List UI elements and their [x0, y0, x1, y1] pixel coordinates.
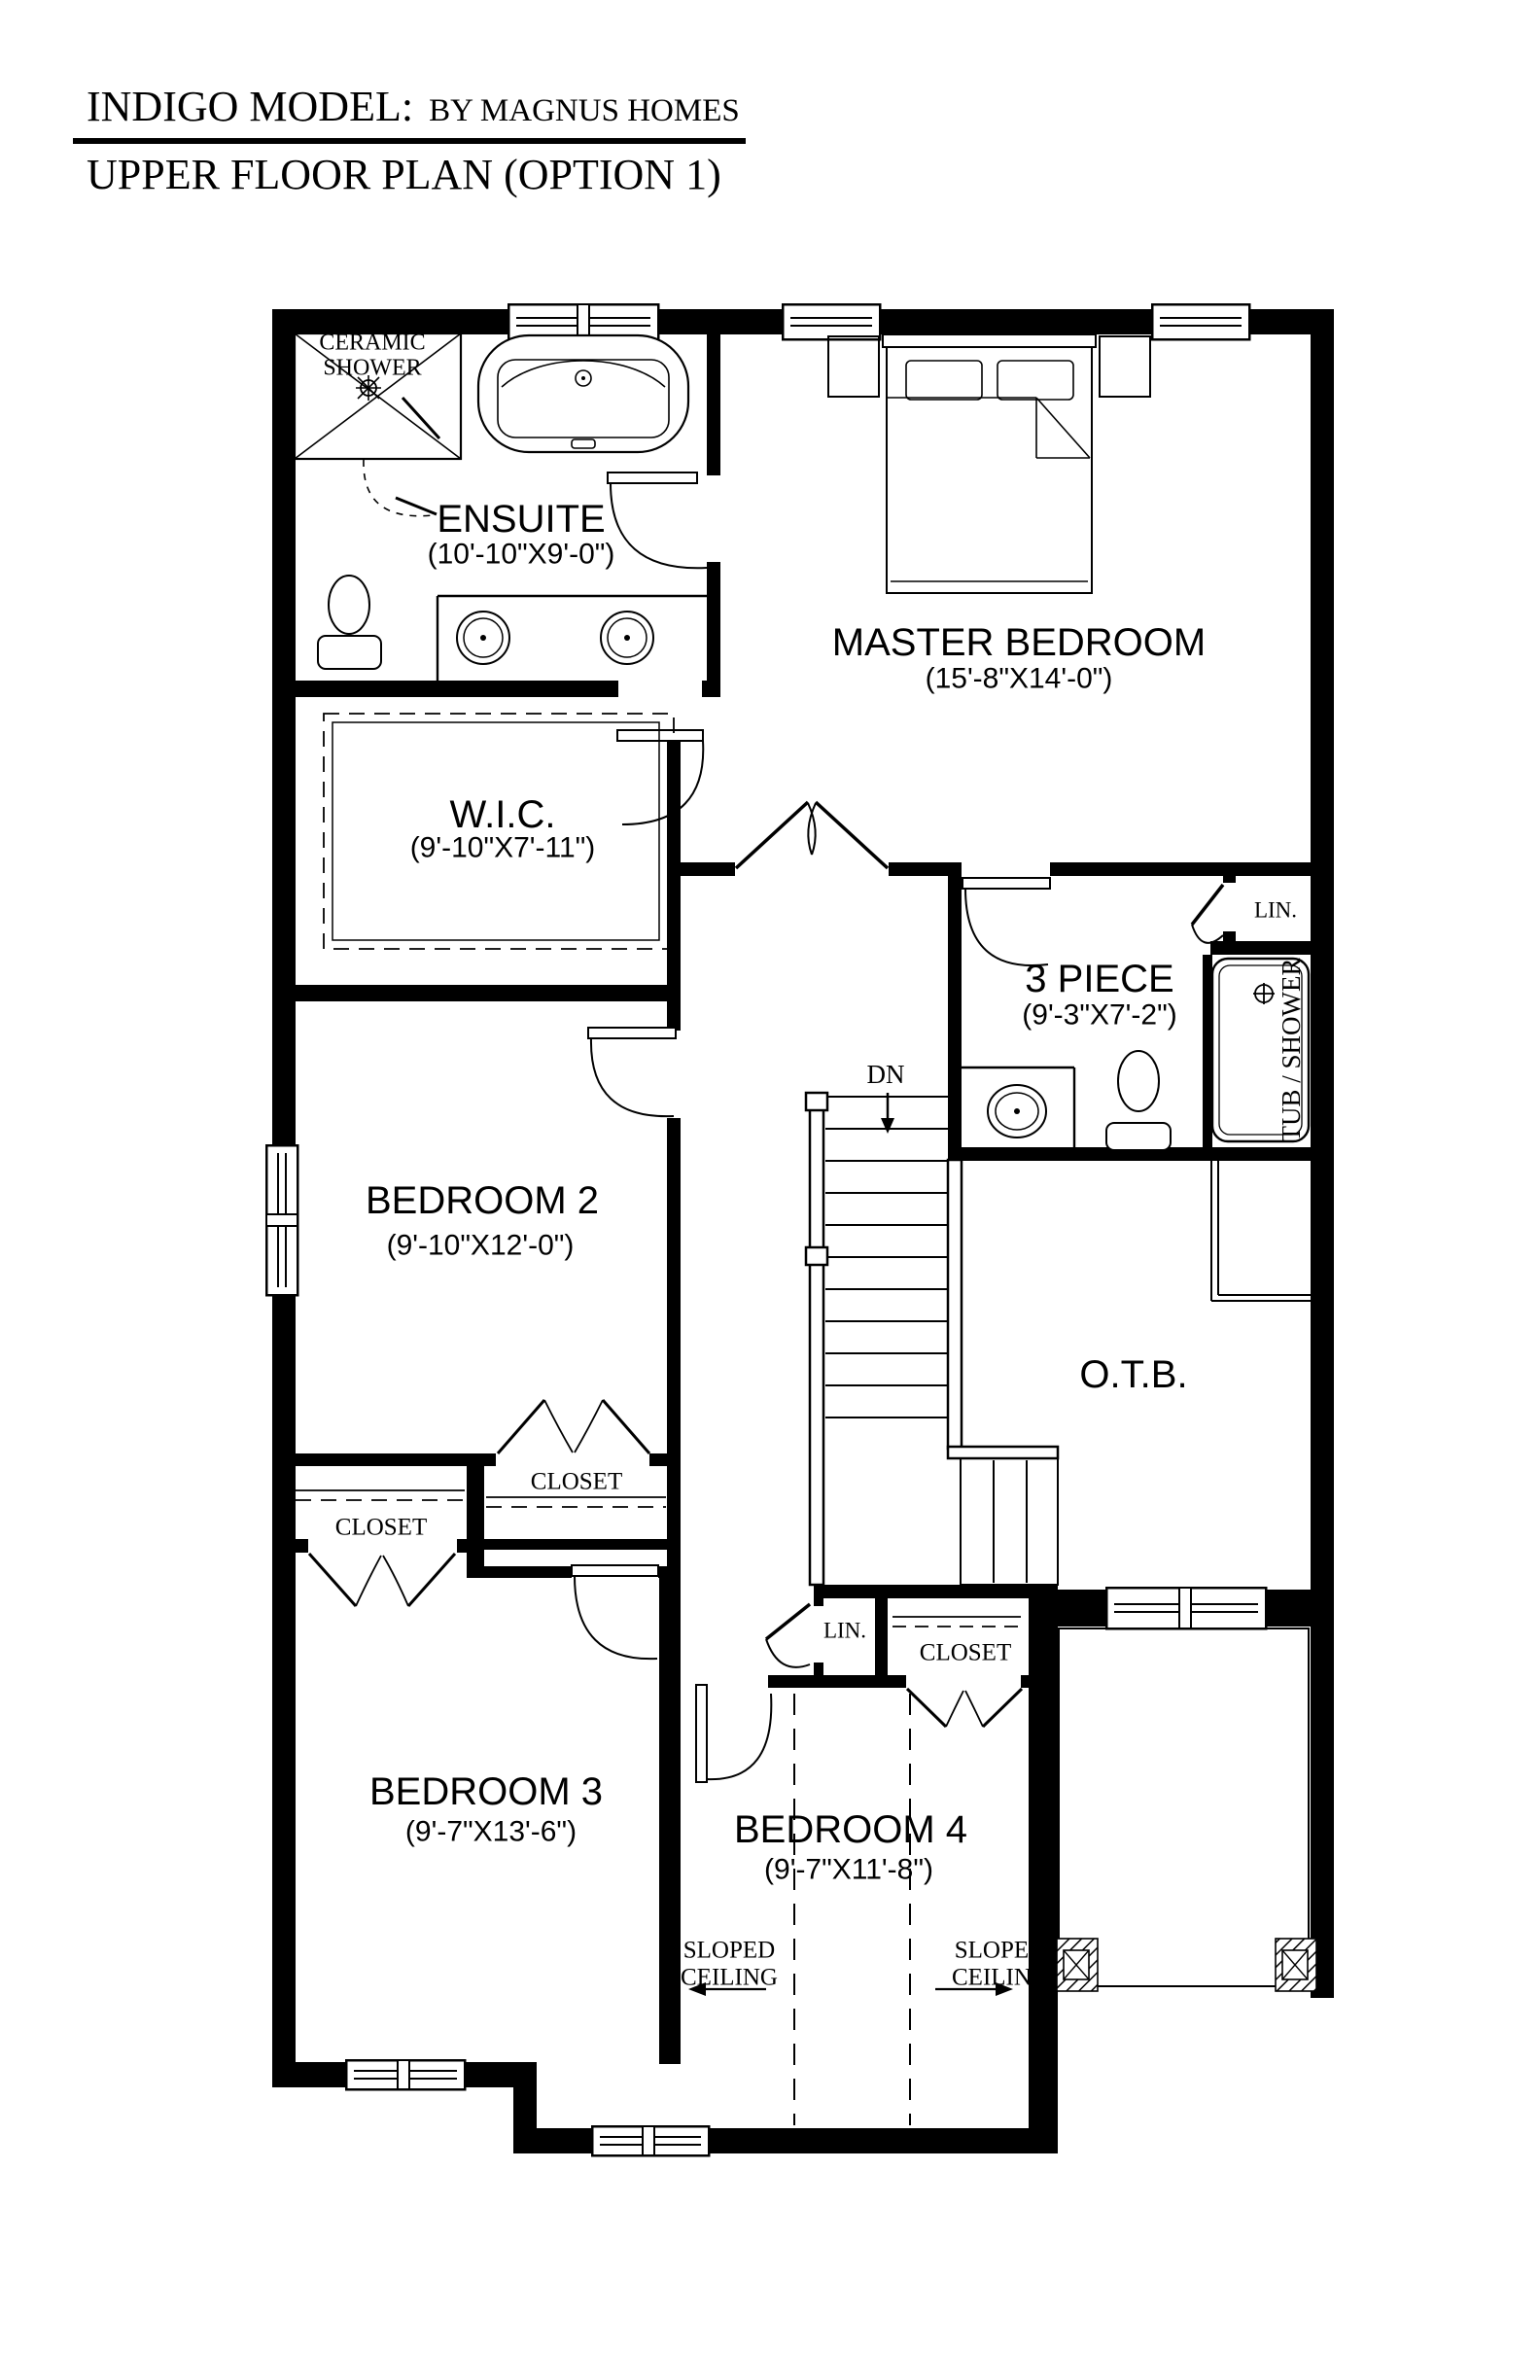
linen-bath-label: LIN. [1254, 897, 1297, 922]
closet-bedroom4-label: CLOSET [920, 1639, 1011, 1666]
bifold-closet-bedroom2 [498, 1400, 649, 1453]
room-dims-master-bedroom: (15'-8"X14'-0") [926, 663, 1113, 695]
room-dims-three-piece: (9'-3"X7'-2") [1022, 999, 1176, 1032]
room-label-wic: W.I.C. [450, 793, 556, 836]
vanity-ensuite [437, 596, 707, 683]
vanity-three-piece [961, 1067, 1074, 1154]
window-master-1 [783, 304, 880, 339]
toilet-three-piece [1106, 1051, 1171, 1150]
stairs-down-arrow [881, 1093, 894, 1134]
door-wic [617, 730, 703, 824]
linen-hall-label: LIN. [823, 1618, 866, 1642]
door-ensuite [608, 472, 707, 568]
floor-plan-drawing [0, 0, 1540, 2380]
closet-bedroom2-label: CLOSET [531, 1468, 622, 1495]
room-dims-wic: (9'-10"X7'-11") [410, 832, 596, 864]
door-bedroom4 [696, 1685, 771, 1782]
door-bedroom2 [588, 1028, 676, 1116]
closet-bedroom3-label: CLOSET [335, 1514, 427, 1541]
post-right [1276, 1939, 1316, 1991]
room-label-bedroom3: BEDROOM 3 [369, 1770, 603, 1813]
window-bedroom2 [266, 1145, 297, 1295]
staircase [806, 1093, 1058, 1585]
bifold-closet-bedroom4 [907, 1689, 1022, 1727]
room-dims-bedroom4: (9'-7"X11'-8") [764, 1854, 933, 1886]
toilet-ensuite [318, 576, 381, 669]
drawing-sheet: INDIGO MODEL:BY MAGNUS HOMES UPPER FLOOR… [0, 0, 1540, 2380]
door-linen-bath [1192, 885, 1223, 943]
otb-notch [1211, 1161, 1311, 1301]
nightstand-left [828, 336, 879, 397]
room-dims-bedroom2: (9'-10"X12'-0") [387, 1230, 575, 1262]
window-bedroom4 [592, 2126, 709, 2155]
window-balcony [1106, 1588, 1266, 1628]
tub-shower-label: TUB / SHOWER [1277, 959, 1307, 1142]
room-label-bedroom4: BEDROOM 4 [734, 1808, 967, 1851]
door-linen-hall [766, 1604, 810, 1667]
sloped-ceiling-left-label: SLOPED CEILING [681, 1938, 778, 1991]
sloped-ceiling-right-label: SLOPED CEILING [952, 1938, 1049, 1991]
window-ensuite [508, 304, 658, 339]
room-dims-ensuite: (10'-10"X9'-0") [428, 539, 615, 571]
room-label-master-bedroom: MASTER BEDROOM [832, 621, 1206, 664]
window-bedroom3 [346, 2060, 465, 2089]
floor-plan: CERAMIC SHOWER ENSUITE (10'-10"X9'-0") M… [0, 0, 1540, 2380]
door-master-double [736, 802, 888, 868]
closet-rod-lines [296, 714, 1021, 1627]
sloped-ceiling-lines [688, 1694, 1013, 2125]
room-label-three-piece: 3 PIECE [1025, 958, 1173, 1000]
window-master-2 [1152, 304, 1249, 339]
post-left [1057, 1939, 1098, 1991]
dn-label: DN [867, 1061, 905, 1090]
door-bedroom3 [572, 1565, 658, 1659]
bifold-closet-bedroom3 [309, 1554, 455, 1606]
room-label-otb: O.T.B. [1079, 1353, 1187, 1396]
bathtub [478, 335, 688, 452]
balcony [1057, 1628, 1316, 1991]
door-three-piece [962, 878, 1050, 965]
bed-master [883, 334, 1096, 593]
room-dims-bedroom3: (9'-7"X13'-6") [405, 1816, 577, 1848]
room-label-ensuite: ENSUITE [437, 498, 605, 541]
room-label-bedroom2: BEDROOM 2 [366, 1179, 599, 1222]
ceramic-shower-label: CERAMIC SHOWER [319, 331, 425, 382]
nightstand-right [1100, 336, 1150, 397]
